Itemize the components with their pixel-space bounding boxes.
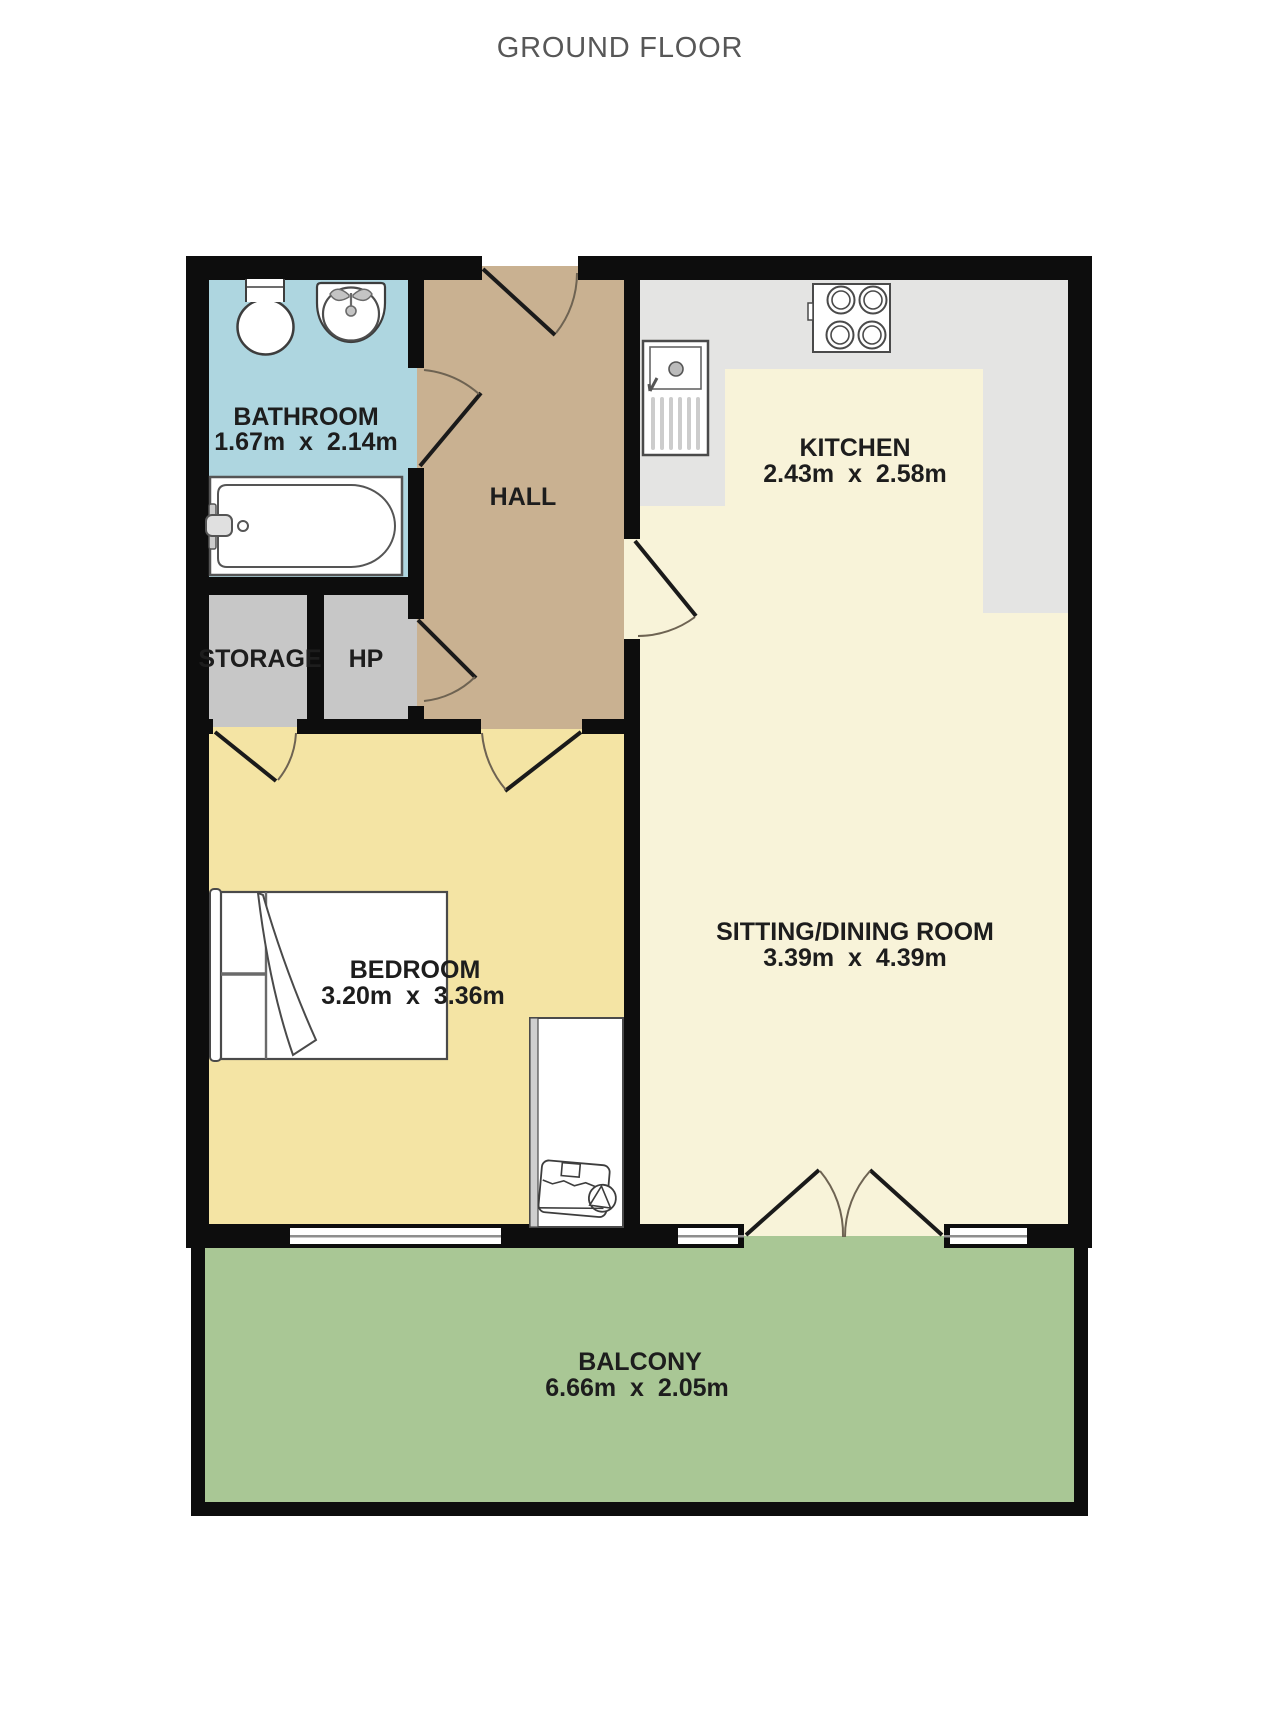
svg-text:KITCHEN: KITCHEN bbox=[799, 434, 910, 462]
svg-text:SITTING/DINING ROOM: SITTING/DINING ROOM bbox=[716, 918, 994, 946]
svg-text:BALCONY: BALCONY bbox=[578, 1348, 702, 1376]
svg-text:HP: HP bbox=[349, 645, 384, 673]
svg-text:3.20m x 3.36m: 3.20m x 3.36m bbox=[321, 982, 504, 1010]
svg-text:1.67m x 2.14m: 1.67m x 2.14m bbox=[214, 428, 397, 456]
svg-text:2.43m x 2.58m: 2.43m x 2.58m bbox=[763, 460, 946, 488]
svg-text:3.39m x 4.39m: 3.39m x 4.39m bbox=[763, 944, 946, 972]
svg-text:6.66m x 2.05m: 6.66m x 2.05m bbox=[545, 1374, 728, 1402]
svg-text:GROUND FLOOR: GROUND FLOOR bbox=[497, 32, 743, 64]
svg-text:BATHROOM: BATHROOM bbox=[233, 403, 378, 431]
svg-text:BEDROOM: BEDROOM bbox=[350, 956, 481, 984]
svg-text:STORAGE: STORAGE bbox=[198, 645, 321, 673]
svg-text:HALL: HALL bbox=[490, 483, 557, 511]
